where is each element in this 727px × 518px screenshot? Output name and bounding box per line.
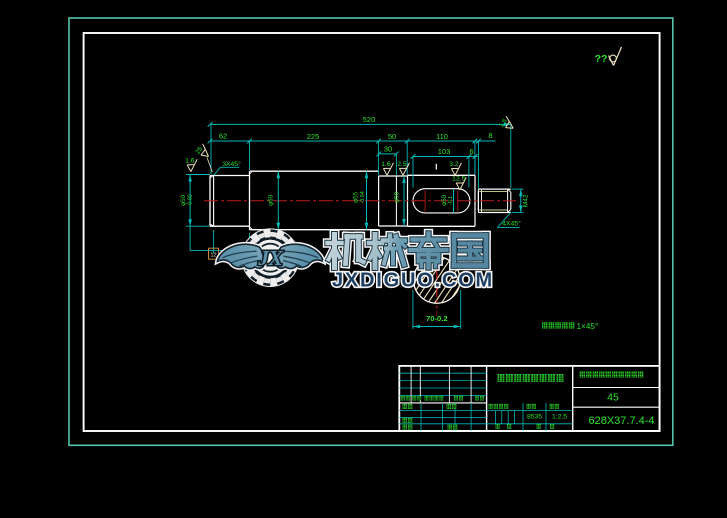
svg-text:62: 62 bbox=[219, 131, 227, 140]
svg-text:2.5: 2.5 bbox=[397, 161, 407, 168]
svg-text:30: 30 bbox=[384, 145, 392, 154]
svg-text:1:2.5: 1:2.5 bbox=[552, 413, 567, 420]
svg-text:??: ?? bbox=[595, 53, 608, 65]
svg-text:3X45°: 3X45° bbox=[222, 160, 241, 168]
svg-text:φ55: φ55 bbox=[353, 191, 360, 202]
svg-text:8535: 8535 bbox=[527, 413, 542, 420]
svg-text:4X45°: 4X45° bbox=[502, 219, 521, 227]
svg-text:φ50: φ50 bbox=[441, 194, 448, 205]
svg-text:1.6: 1.6 bbox=[185, 157, 195, 164]
svg-text:6: 6 bbox=[469, 147, 473, 156]
svg-text:70-0.2: 70-0.2 bbox=[426, 314, 448, 323]
svg-text:45: 45 bbox=[607, 391, 619, 403]
svg-text:520: 520 bbox=[363, 115, 376, 124]
svg-text:-0.04: -0.04 bbox=[360, 191, 366, 203]
svg-text:12: 12 bbox=[210, 253, 216, 259]
svg-text:50: 50 bbox=[388, 132, 396, 141]
svg-text:8: 8 bbox=[488, 131, 492, 140]
svg-text:JXDIGUO.COM: JXDIGUO.COM bbox=[332, 270, 494, 292]
svg-text:225: 225 bbox=[307, 132, 320, 141]
svg-text:φ60: φ60 bbox=[268, 194, 275, 205]
svg-text:1.6: 1.6 bbox=[381, 161, 391, 168]
svg-text:1×45°: 1×45° bbox=[577, 322, 599, 331]
svg-text:φ50: φ50 bbox=[394, 191, 401, 202]
svg-text:φ50: φ50 bbox=[180, 194, 187, 205]
svg-text:628X37.7.4-4: 628X37.7.4-4 bbox=[588, 415, 654, 427]
svg-text:110: 110 bbox=[436, 132, 448, 141]
svg-text:103: 103 bbox=[438, 147, 451, 156]
svg-text:12.5: 12.5 bbox=[452, 176, 465, 183]
svg-text:-0.1: -0.1 bbox=[448, 196, 454, 205]
svg-text:3.2: 3.2 bbox=[449, 161, 459, 168]
svg-text:-0.02: -0.02 bbox=[188, 194, 194, 206]
svg-text:M42: M42 bbox=[523, 194, 530, 207]
svg-text:JX: JX bbox=[257, 246, 283, 270]
